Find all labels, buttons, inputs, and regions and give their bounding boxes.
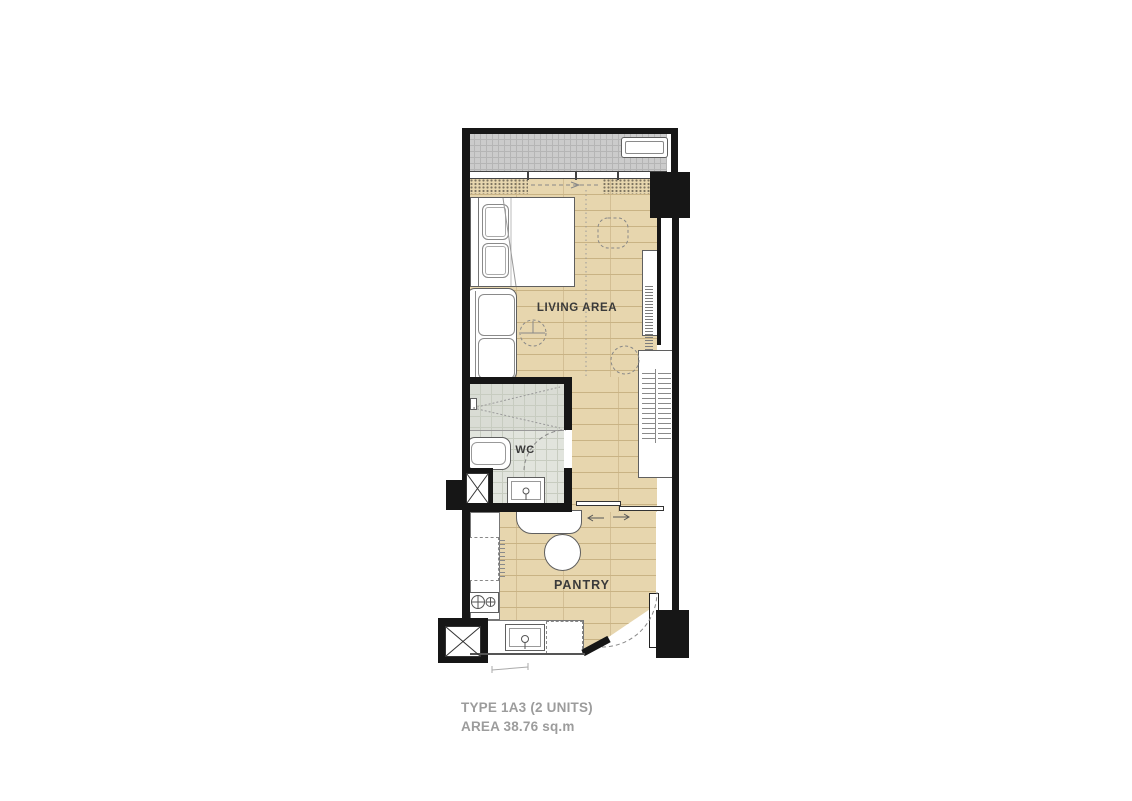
- stove: [468, 592, 499, 613]
- wc-sink-basin: [511, 481, 541, 500]
- balcony-sliding-door: [469, 171, 667, 179]
- fridge-hatch: [499, 540, 505, 580]
- bathtub-inner: [471, 442, 506, 465]
- shower-area: [470, 384, 564, 431]
- dining-bench: [516, 510, 582, 534]
- curtain-stipple-left: [470, 179, 528, 194]
- hanger-rail: [645, 286, 653, 360]
- shower-head: [470, 398, 477, 410]
- wall-right-outer: [672, 218, 679, 618]
- bathtub-vanity: [466, 437, 511, 470]
- washer-position: [546, 621, 583, 654]
- pillow: [482, 243, 509, 278]
- air-conditioner-inner: [625, 141, 664, 154]
- sofa-cushion: [478, 294, 515, 336]
- refrigerator: [469, 537, 499, 581]
- wc-sink: [507, 477, 545, 504]
- column-bottom-right: [656, 610, 689, 658]
- window-inner-frame: [657, 218, 661, 345]
- door-panel-tick: [617, 172, 619, 180]
- door-panel-tick: [575, 172, 577, 180]
- sliding-door-panel: [576, 501, 621, 506]
- wall-balcony-top: [462, 128, 678, 134]
- sliding-door-panel: [619, 506, 664, 511]
- air-conditioner-unit: [621, 137, 668, 158]
- wall-wc-pantry: [462, 503, 572, 512]
- living-area-label: LIVING AREA: [537, 302, 617, 314]
- kitchen-sink-basin: [509, 628, 541, 647]
- plan-type-title: TYPE 1A3 (2 UNITS): [461, 700, 593, 715]
- wall-wc-right-upper: [564, 377, 572, 430]
- wall-wc-left-jog: [446, 480, 462, 510]
- shaft-box-wc: [466, 473, 489, 504]
- wall-left: [462, 128, 470, 662]
- wardrobe-shelves-left: [642, 369, 655, 443]
- pillow: [482, 204, 509, 240]
- curtain-stipple-right: [603, 179, 656, 194]
- wall-block-top-right: [650, 172, 690, 218]
- wc-label: WC: [515, 444, 534, 456]
- bed: [470, 197, 575, 287]
- wall-balcony-right: [671, 128, 678, 176]
- wardrobe: [638, 350, 674, 478]
- pantry-label: PANTRY: [554, 578, 610, 592]
- wall-bottom-thin: [470, 653, 585, 655]
- plan-area-title: AREA 38.76 sq.m: [461, 719, 575, 734]
- kitchen-sink: [505, 624, 545, 651]
- round-table: [544, 534, 581, 571]
- wall-living-wc: [462, 377, 572, 384]
- sofa-cushion: [478, 338, 515, 379]
- wardrobe-divider: [655, 369, 656, 443]
- door-panel-tick: [527, 172, 529, 180]
- wardrobe-shelves-right: [658, 369, 671, 443]
- sofa: [466, 288, 517, 381]
- floor-plan: LIVING AREA WC PANTRY TYPE 1A3 (2 UNITS)…: [0, 0, 1132, 801]
- dimension-mark: [492, 663, 528, 673]
- headboard: [471, 198, 479, 286]
